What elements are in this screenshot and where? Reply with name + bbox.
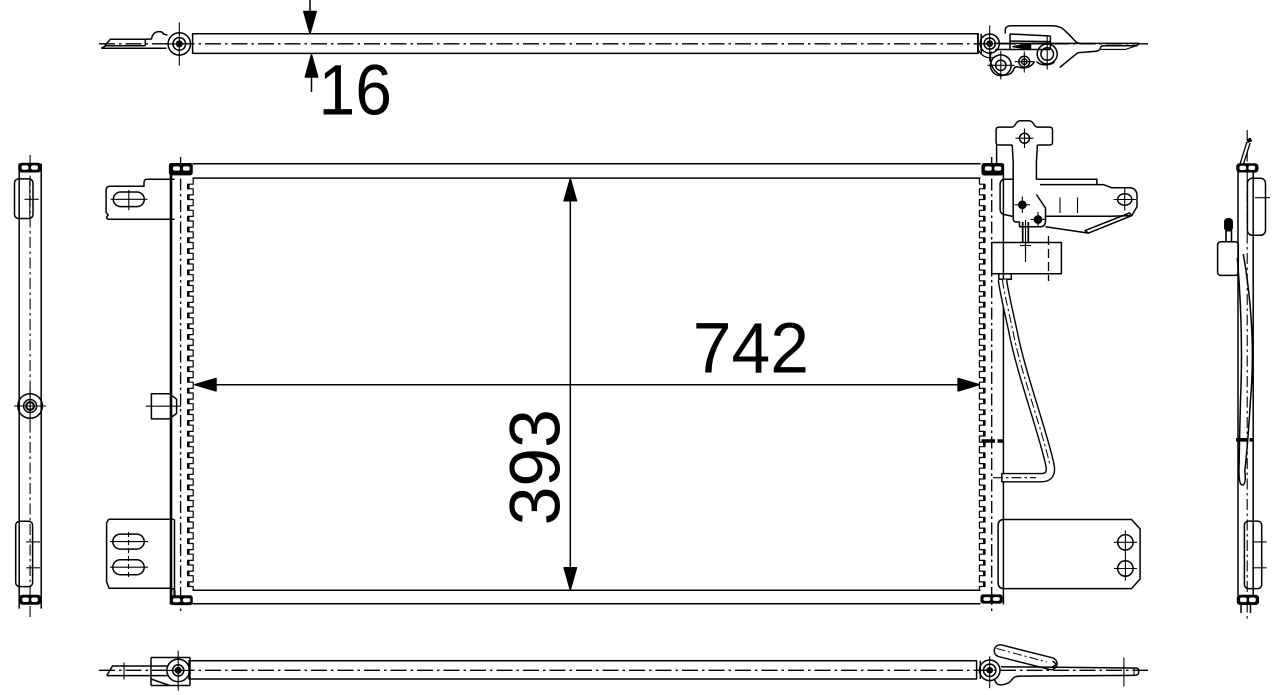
- svg-text:393: 393: [495, 409, 575, 525]
- svg-text:742: 742: [693, 308, 809, 388]
- svg-text:16: 16: [319, 50, 392, 130]
